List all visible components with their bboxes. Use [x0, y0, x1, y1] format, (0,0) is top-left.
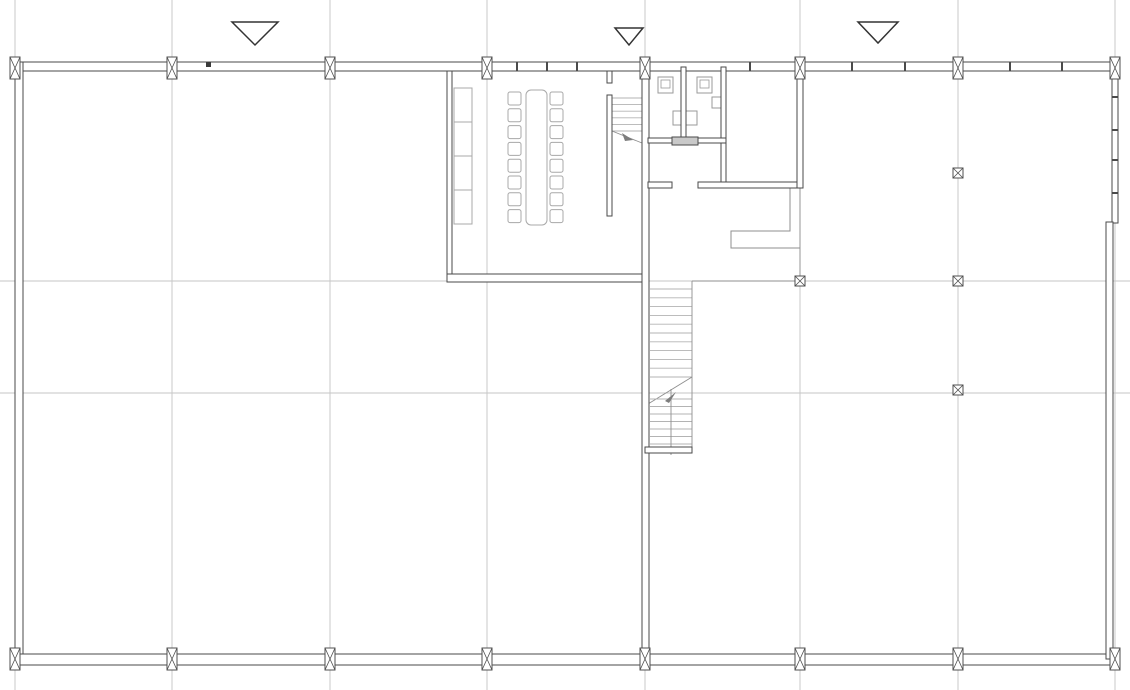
meeting-room-left-wall [447, 71, 452, 277]
annotations-layer [206, 62, 211, 67]
chair [508, 159, 521, 172]
column-marker-bottom [953, 648, 963, 670]
meeting-stair-wall [607, 95, 612, 216]
chair [550, 142, 563, 155]
lobby-wall [797, 71, 803, 188]
meeting-stair-wall-stub [607, 71, 612, 83]
column-marker-bottom [1110, 648, 1120, 670]
edges-layer [447, 188, 800, 589]
door-reference-dot [206, 62, 211, 67]
toilet [658, 77, 673, 93]
chair [508, 92, 521, 105]
walls-layer [10, 62, 1120, 665]
right-wall-upper [1112, 71, 1118, 223]
column-marker-top [167, 57, 177, 79]
stair-direction-arrow [622, 133, 633, 141]
left-wall [15, 62, 23, 662]
column-marker-top [1110, 57, 1120, 79]
column-marker-field [795, 276, 805, 286]
chair [508, 109, 521, 122]
stair-direction-arrow [665, 392, 676, 403]
chair [550, 92, 563, 105]
meeting-room-bottom-wall [447, 274, 649, 282]
section-marker-large-right [858, 22, 898, 43]
column-marker-bottom [640, 648, 650, 670]
floor-plan-canvas [0, 0, 1130, 690]
floor-plan-svg [0, 0, 1130, 690]
column-marker-top [482, 57, 492, 79]
chair [550, 193, 563, 206]
wc-right-wall [721, 67, 726, 188]
section-marker-small-mid [615, 28, 643, 45]
gridlines-layer [0, 0, 1130, 690]
toilet-bowl [661, 80, 670, 88]
column-marker-bottom [482, 648, 492, 670]
column-marker-bottom [795, 648, 805, 670]
reception-counter [731, 188, 800, 248]
corridor-wall-east [698, 182, 803, 188]
chair [550, 176, 563, 189]
chair [550, 159, 563, 172]
column-marker-top [795, 57, 805, 79]
section-marker-large-left [232, 22, 278, 45]
toilet [697, 77, 712, 93]
column-marker-top [10, 57, 20, 79]
column-marker-top [953, 57, 963, 79]
column-marker-bottom [10, 648, 20, 670]
column-marker-top [640, 57, 650, 79]
core-wall [642, 71, 649, 659]
chair [550, 126, 563, 139]
conference-table [526, 90, 547, 225]
toilet-bowl [700, 80, 709, 88]
columns-layer [10, 57, 1120, 670]
chair [508, 142, 521, 155]
column-marker-bottom [325, 648, 335, 670]
right-wall-lower [1106, 222, 1113, 659]
stair-landing-wall [645, 447, 692, 453]
wc-divider-wall [681, 67, 686, 141]
column-marker-top [325, 57, 335, 79]
column-marker-field [953, 168, 963, 178]
column-marker-bottom [167, 648, 177, 670]
section-markers-layer [232, 22, 898, 45]
chair [508, 126, 521, 139]
corridor-wall-west [648, 182, 672, 188]
column-marker-field [953, 385, 963, 395]
chair [508, 193, 521, 206]
column-marker-field [953, 276, 963, 286]
chair [508, 176, 521, 189]
chair [550, 210, 563, 223]
chair [550, 109, 563, 122]
wc-bottom-wall-thick [672, 137, 698, 145]
chair [508, 210, 521, 223]
